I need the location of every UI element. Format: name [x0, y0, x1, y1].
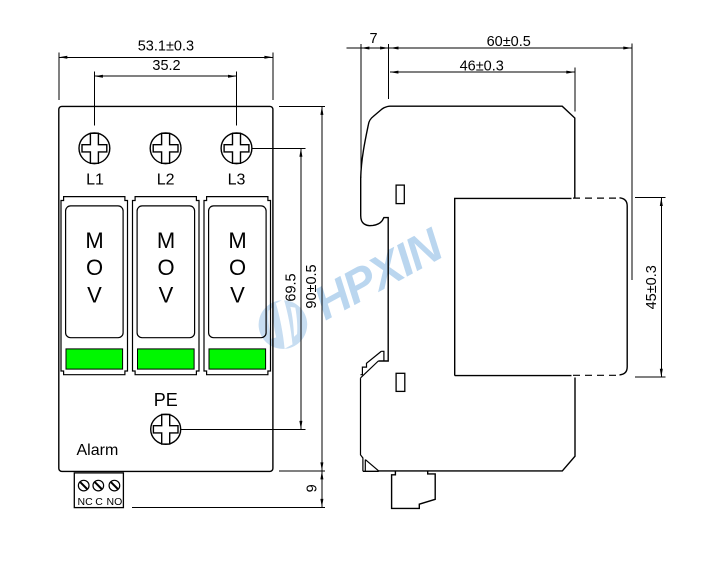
svg-text:PE: PE [154, 390, 178, 410]
svg-text:45±0.3: 45±0.3 [644, 265, 660, 309]
svg-text:NC: NC [78, 496, 94, 508]
svg-text:O: O [157, 255, 174, 280]
svg-text:C: C [95, 496, 103, 508]
svg-text:7: 7 [369, 31, 377, 47]
svg-text:L2: L2 [157, 172, 175, 189]
svg-text:NO: NO [107, 496, 123, 508]
svg-text:60±0.5: 60±0.5 [487, 34, 531, 50]
svg-text:O: O [229, 255, 246, 280]
svg-text:53.1±0.3: 53.1±0.3 [138, 38, 194, 54]
svg-text:V: V [159, 283, 174, 308]
svg-text:35.2: 35.2 [152, 58, 180, 74]
svg-text:V: V [87, 283, 102, 308]
svg-text:M: M [228, 228, 246, 253]
svg-text:M: M [157, 228, 175, 253]
svg-text:L1: L1 [86, 172, 104, 189]
svg-text:46±0.3: 46±0.3 [460, 58, 504, 74]
svg-text:V: V [230, 283, 245, 308]
svg-text:9: 9 [305, 484, 321, 492]
svg-text:Alarm: Alarm [77, 442, 119, 459]
svg-text:M: M [85, 228, 103, 253]
svg-text:L3: L3 [228, 172, 246, 189]
svg-text:69.5: 69.5 [283, 273, 299, 301]
svg-text:O: O [86, 255, 103, 280]
